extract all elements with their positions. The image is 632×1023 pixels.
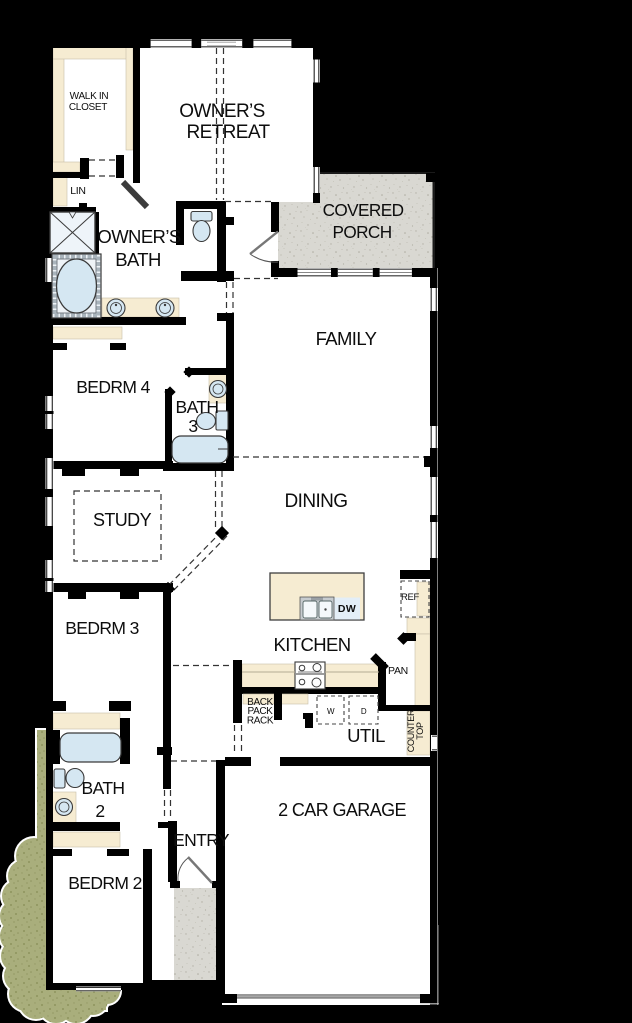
svg-text:TOP: TOP [415, 722, 425, 740]
svg-text:UTIL: UTIL [347, 725, 385, 746]
svg-text:D: D [361, 707, 367, 716]
svg-text:REF: REF [401, 592, 420, 603]
svg-text:LIN: LIN [70, 185, 85, 197]
svg-text:DINING: DINING [285, 491, 348, 512]
svg-text:OWNER’S: OWNER’S [179, 101, 265, 122]
svg-text:KITCHEN: KITCHEN [274, 634, 351, 655]
svg-text:W: W [327, 707, 335, 716]
svg-text:3: 3 [188, 416, 197, 436]
svg-text:2: 2 [95, 801, 104, 821]
svg-text:RETREAT: RETREAT [186, 122, 270, 143]
svg-text:DW: DW [338, 603, 356, 615]
svg-text:PORCH: PORCH [332, 222, 391, 242]
svg-text:BATH: BATH [115, 249, 161, 270]
svg-text:BEDRM 3: BEDRM 3 [65, 618, 139, 638]
svg-text:STUDY: STUDY [93, 510, 152, 530]
svg-text:COVERED: COVERED [323, 200, 404, 220]
svg-text:PAN: PAN [388, 665, 408, 677]
svg-text:RACK: RACK [247, 716, 274, 727]
svg-text:CLOSET: CLOSET [69, 102, 107, 113]
svg-text:BEDRM 2: BEDRM 2 [68, 873, 142, 893]
svg-text:FAMILY: FAMILY [316, 328, 377, 349]
svg-text:ENTRY: ENTRY [173, 830, 230, 850]
svg-text:BATH: BATH [82, 778, 125, 798]
svg-text:BATH: BATH [176, 397, 219, 417]
svg-text:2 CAR GARAGE: 2 CAR GARAGE [278, 800, 406, 820]
svg-text:BEDRM 4: BEDRM 4 [76, 377, 150, 397]
svg-text:OWNER’S: OWNER’S [97, 226, 180, 247]
svg-text:WALK IN: WALK IN [70, 91, 109, 102]
